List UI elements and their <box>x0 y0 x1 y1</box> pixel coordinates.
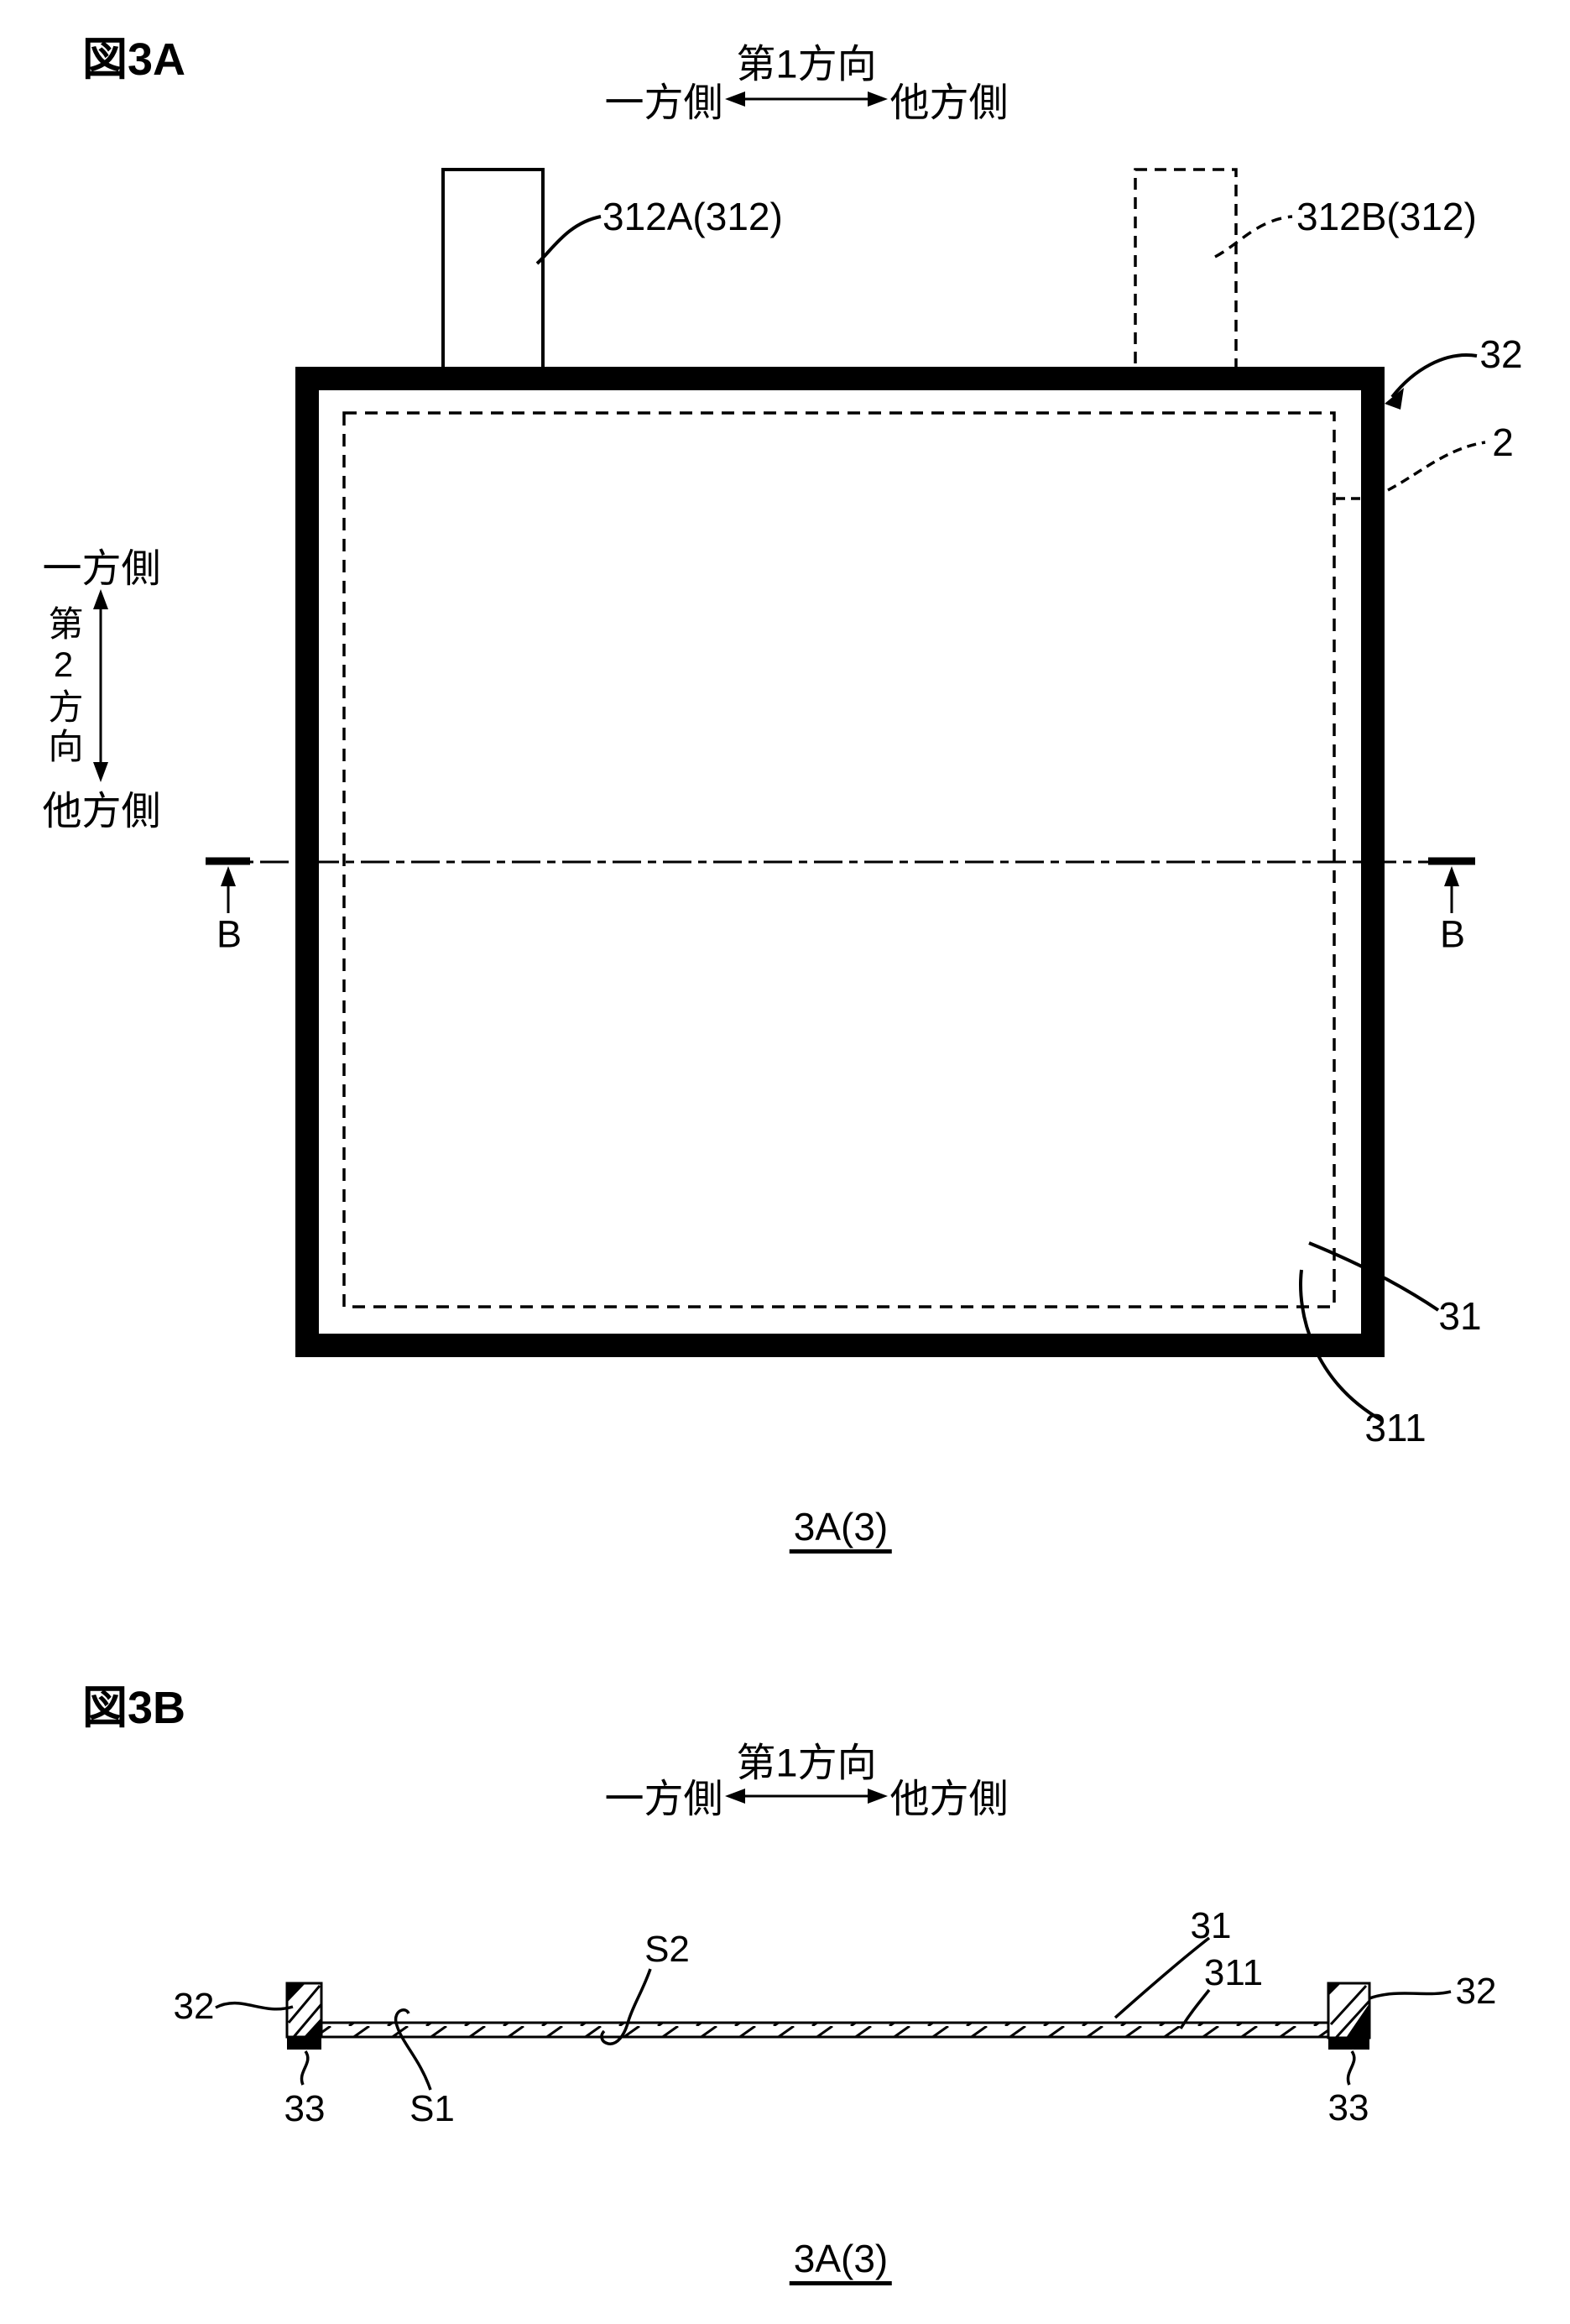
tab-312b-shape <box>1135 170 1236 368</box>
label-tab-312a: 312A(312) <box>602 197 783 236</box>
fig3b-direction1-axis-label: 第1方向 <box>736 1743 876 1783</box>
label-sheet-edge-311: 311 <box>1364 1408 1426 1447</box>
direction1b-arrowhead-right <box>868 1789 888 1804</box>
direction2-arrowhead-bottom <box>93 762 108 782</box>
figure-linework <box>0 0 1570 2324</box>
section-arrowhead-right <box>1444 866 1459 886</box>
fig3b-direction1-right-label: 他方側 <box>890 1779 1009 1819</box>
tab-312a-shape <box>443 170 543 368</box>
direction1b-arrowhead-left <box>725 1789 745 1804</box>
label-32-left: 32 <box>174 1988 215 2025</box>
fig3a-direction2-axis-label: 第2方向 <box>45 605 81 767</box>
leader-body-2 <box>1388 442 1485 490</box>
fig3a-direction2-bottom-label: 他方側 <box>43 791 161 831</box>
fig3a-direction1-right-label: 他方側 <box>890 83 1009 123</box>
figure-3b-caption: 3A(3) <box>790 2239 892 2285</box>
leader-frame-32-arrowhead <box>1385 388 1404 410</box>
label-32-right: 32 <box>1456 1973 1497 2010</box>
label-surface-s1: S1 <box>409 2091 455 2128</box>
fig3b-direction1-left-label: 一方側 <box>605 1779 723 1819</box>
leader-frame-32 <box>1392 355 1477 397</box>
label-section-b-left: B <box>216 916 242 953</box>
direction2-arrowhead-top <box>93 589 108 609</box>
fig3a-direction1-left-label: 一方側 <box>605 83 723 123</box>
label-section-b-right: B <box>1440 916 1465 953</box>
fig3a-direction2-top-label: 一方側 <box>43 549 161 588</box>
label-33-left: 33 <box>284 2091 326 2128</box>
label-33-right: 33 <box>1328 2090 1369 2127</box>
label-tab-312b: 312B(312) <box>1296 197 1477 236</box>
label-frame-32: 32 <box>1479 335 1522 373</box>
leader-33-right <box>1348 2051 1354 2085</box>
figure-3a-title: 図3A <box>82 37 185 82</box>
patent-drawing-page: 図3A 第1方向 一方側 他方側 312A(312) 312B(312) 32 … <box>0 0 1570 2324</box>
leader-32-left <box>216 2003 293 2009</box>
adhesive-33-left-shape <box>287 2037 321 2050</box>
figure-3a-caption: 3A(3) <box>790 1507 892 1554</box>
electrode-body-2-shape <box>344 413 1334 1307</box>
leader-33-left <box>301 2051 307 2085</box>
label-sheet-31: 31 <box>1438 1297 1481 1335</box>
label-sheet-edge-311b: 311 <box>1204 1955 1263 1992</box>
leader-tab-312a <box>537 217 601 264</box>
figure-3b-title: 図3B <box>82 1685 185 1731</box>
direction1-arrowhead-left <box>725 91 745 107</box>
adhesive-33-right-shape <box>1328 2038 1369 2050</box>
label-sheet-31b: 31 <box>1191 1908 1232 1945</box>
label-body-2: 2 <box>1492 423 1514 462</box>
label-surface-s2: S2 <box>644 1931 690 1968</box>
fig3a-direction1-axis-label: 第1方向 <box>736 44 876 84</box>
direction1-arrowhead-right <box>868 91 888 107</box>
sheet-31-bar <box>287 2023 1369 2037</box>
leader-32-right <box>1369 1992 1451 1998</box>
section-arrowhead-left <box>221 866 236 886</box>
